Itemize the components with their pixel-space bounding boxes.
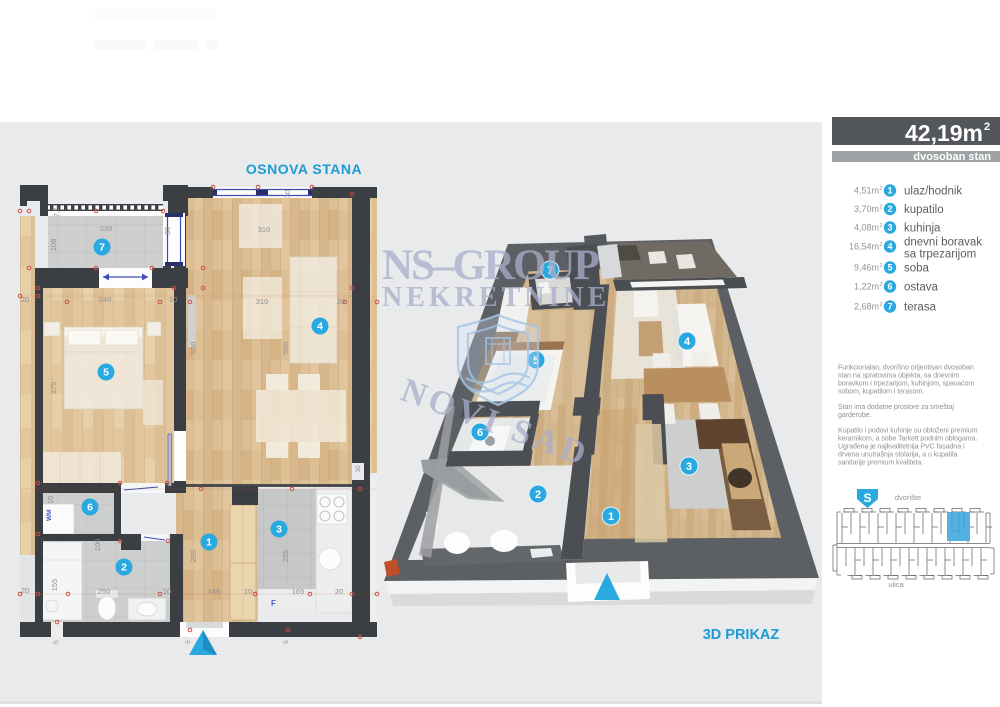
svg-text:Ugrađena je najkvalitetnija PV: Ugrađena je najkvalitetnija PVC fasadna … bbox=[838, 442, 965, 450]
svg-text:kuhinja: kuhinja bbox=[904, 223, 941, 235]
svg-text:2: 2 bbox=[984, 121, 990, 133]
svg-text:2: 2 bbox=[880, 205, 883, 211]
svg-text:1,22m: 1,22m bbox=[854, 282, 879, 292]
svg-text:dnevni boravak: dnevni boravak bbox=[904, 237, 982, 249]
svg-text:dvosoban stan: dvosoban stan bbox=[913, 151, 991, 163]
svg-text:dvorište: dvorište bbox=[895, 493, 921, 502]
svg-text:stan na spratovima objekta, sa: stan na spratovima objekta, sa dnevnim bbox=[838, 371, 959, 379]
svg-text:2: 2 bbox=[880, 242, 883, 248]
svg-text:ulaz/hodnik: ulaz/hodnik bbox=[904, 186, 962, 198]
svg-text:terasa: terasa bbox=[904, 302, 937, 314]
svg-text:Stan ima dodatne prostore za s: Stan ima dodatne prostore za smeštaj bbox=[838, 403, 954, 411]
svg-text:soba: soba bbox=[904, 263, 930, 275]
svg-text:2: 2 bbox=[887, 204, 892, 214]
svg-text:2: 2 bbox=[880, 223, 883, 229]
svg-text:2: 2 bbox=[880, 282, 883, 288]
svg-text:garderobe.: garderobe. bbox=[838, 411, 871, 419]
svg-text:Kupatilo i podovi kuhinje su o: Kupatilo i podovi kuhinje su obloženi pr… bbox=[838, 426, 978, 434]
svg-text:Funkcionalan, dvorišno orijent: Funkcionalan, dvorišno orijentisan dvoso… bbox=[838, 363, 974, 371]
svg-text:4,08m: 4,08m bbox=[854, 223, 879, 233]
svg-text:ostava: ostava bbox=[904, 282, 938, 294]
svg-text:kupatilo: kupatilo bbox=[904, 204, 944, 216]
svg-text:2: 2 bbox=[880, 186, 883, 192]
svg-text:16,54m: 16,54m bbox=[849, 242, 879, 252]
svg-text:6: 6 bbox=[887, 282, 892, 292]
svg-text:2,68m: 2,68m bbox=[854, 302, 879, 312]
svg-text:boravkom i trpezarijom, kuhinj: boravkom i trpezarijom, kuhinjom, spavać… bbox=[838, 379, 974, 387]
svg-text:3,70m: 3,70m bbox=[854, 204, 879, 214]
svg-text:42,19m: 42,19m bbox=[905, 120, 983, 146]
svg-text:keramikom, a sobe Tarkett podn: keramikom, a sobe Tarkett podnim oblogam… bbox=[838, 434, 977, 442]
svg-text:1: 1 bbox=[887, 186, 892, 196]
svg-text:sa trpezarijom: sa trpezarijom bbox=[904, 249, 976, 261]
svg-text:drvena unutrašnja stolarija, a: drvena unutrašnja stolarija, a u kupatil… bbox=[838, 450, 957, 458]
svg-text:4,51m: 4,51m bbox=[854, 186, 879, 196]
svg-text:S: S bbox=[863, 491, 871, 505]
svg-text:7: 7 bbox=[887, 302, 892, 312]
svg-text:2: 2 bbox=[880, 302, 883, 308]
svg-text:sanitarije premium kvaliteta.: sanitarije premium kvaliteta. bbox=[838, 458, 923, 466]
svg-text:4: 4 bbox=[887, 242, 892, 252]
svg-text:sobom, kupatilom i terasom.: sobom, kupatilom i terasom. bbox=[838, 387, 924, 395]
svg-text:ulica: ulica bbox=[888, 580, 904, 589]
svg-text:5: 5 bbox=[887, 263, 892, 273]
svg-text:3: 3 bbox=[887, 223, 892, 233]
svg-text:9,46m: 9,46m bbox=[854, 263, 879, 273]
svg-text:2: 2 bbox=[880, 263, 883, 269]
